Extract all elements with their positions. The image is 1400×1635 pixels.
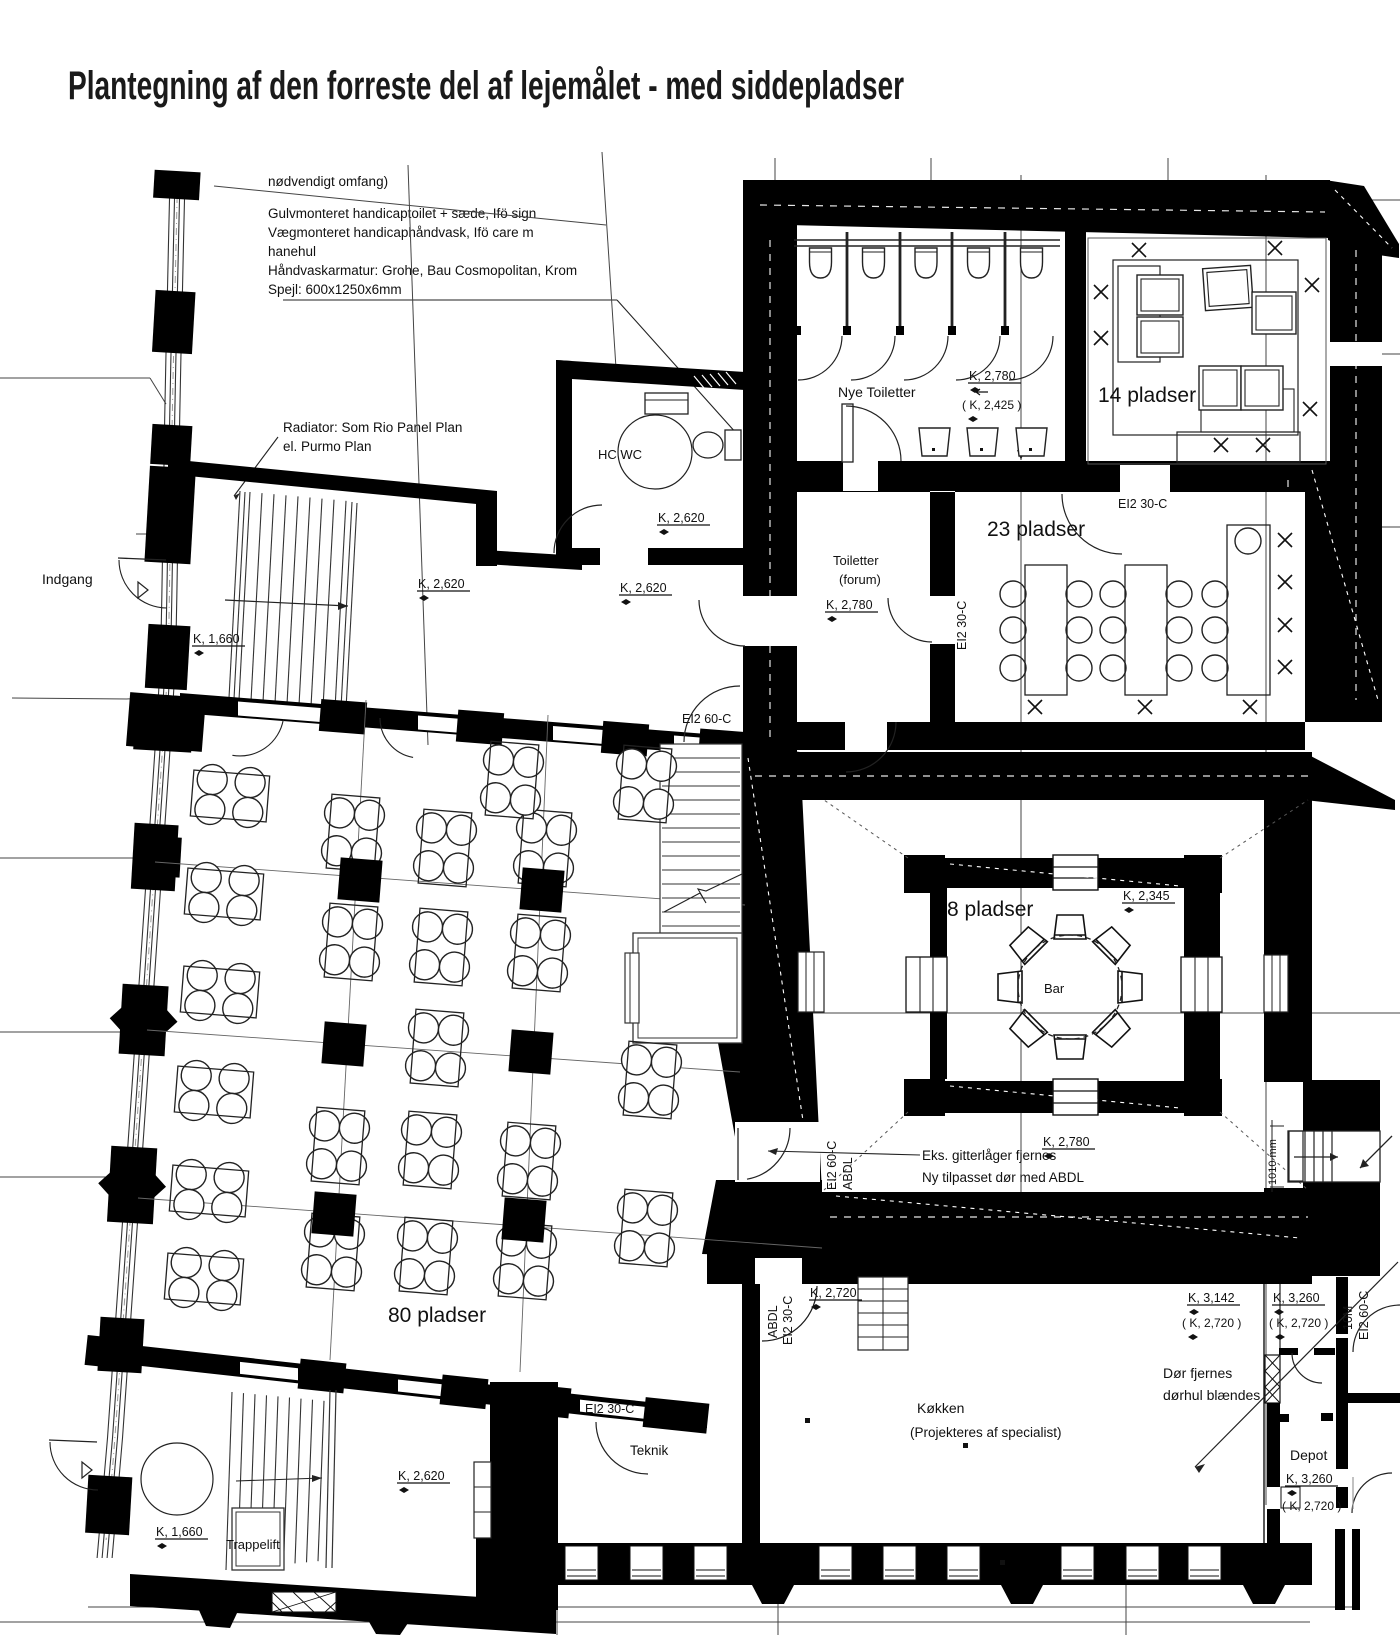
svg-text:K, 2,345: K, 2,345 bbox=[1123, 889, 1170, 903]
svg-text:EI2 60-C: EI2 60-C bbox=[682, 712, 731, 726]
svg-text:K, 3,260: K, 3,260 bbox=[1286, 1472, 1333, 1486]
svg-text:Gulvmonteret handicaptoilet +: Gulvmonteret handicaptoilet + sæde, Ifö … bbox=[268, 206, 536, 221]
svg-text:Håndvaskarmatur: Grohe, Bau Co: Håndvaskarmatur: Grohe, Bau Cosmopolitan… bbox=[268, 263, 577, 278]
svg-text:EI2 60-C: EI2 60-C bbox=[825, 1141, 839, 1190]
svg-text:Indgang: Indgang bbox=[42, 571, 93, 587]
svg-text:EI2 30-C: EI2 30-C bbox=[585, 1402, 634, 1416]
svg-text:EI2 60-C: EI2 60-C bbox=[1357, 1291, 1371, 1340]
svg-text:( K, 2,425 ): ( K, 2,425 ) bbox=[962, 398, 1021, 412]
svg-text:K, 2,720: K, 2,720 bbox=[810, 1286, 857, 1300]
svg-text:ABDL: ABDL bbox=[841, 1157, 855, 1190]
svg-text:10M: 10M bbox=[1341, 1306, 1355, 1330]
svg-text:(forum): (forum) bbox=[839, 572, 881, 587]
svg-text:( K, 2,720 ): ( K, 2,720 ) bbox=[1269, 1316, 1328, 1330]
svg-text:K, 3,142: K, 3,142 bbox=[1188, 1291, 1235, 1305]
svg-text:el. Purmo Plan: el. Purmo Plan bbox=[283, 439, 372, 454]
svg-text:K, 2,780: K, 2,780 bbox=[1043, 1135, 1090, 1149]
svg-text:Eks. gitterlåger fjernes: Eks. gitterlåger fjernes bbox=[922, 1148, 1057, 1163]
svg-text:1010 mm: 1010 mm bbox=[1267, 1139, 1279, 1185]
svg-text:K, 1,660: K, 1,660 bbox=[193, 632, 240, 646]
svg-text:Vægmonteret handicaphåndvask,: Vægmonteret handicaphåndvask, Ifö care m bbox=[268, 225, 534, 240]
svg-text:(Projekteres af specialist): (Projekteres af specialist) bbox=[910, 1425, 1062, 1440]
svg-text:Depot: Depot bbox=[1290, 1447, 1327, 1463]
svg-text:80 pladser: 80 pladser bbox=[388, 1304, 486, 1327]
svg-text:14 pladser: 14 pladser bbox=[1098, 384, 1196, 407]
svg-text:K, 2,780: K, 2,780 bbox=[969, 369, 1016, 383]
svg-text:( K, 2,720 ): ( K, 2,720 ) bbox=[1182, 1316, 1241, 1330]
svg-text:EI2 30-C: EI2 30-C bbox=[781, 1296, 795, 1345]
svg-text:K, 2,620: K, 2,620 bbox=[620, 581, 667, 595]
svg-text:dørhul blændes: dørhul blændes bbox=[1163, 1387, 1260, 1403]
svg-text:Dør fjernes: Dør fjernes bbox=[1163, 1365, 1232, 1381]
svg-text:K, 2,620: K, 2,620 bbox=[418, 577, 465, 591]
svg-text:Spejl: 600x1250x6mm: Spejl: 600x1250x6mm bbox=[268, 282, 402, 297]
svg-text:Radiator: Som Rio Panel Plan: Radiator: Som Rio Panel Plan bbox=[283, 420, 462, 435]
svg-text:Køkken: Køkken bbox=[917, 1400, 964, 1416]
svg-text:K, 1,660: K, 1,660 bbox=[156, 1525, 203, 1539]
svg-text:nødvendigt omfang): nødvendigt omfang) bbox=[268, 174, 388, 189]
svg-text:( K, 2,720 ): ( K, 2,720 ) bbox=[1282, 1499, 1341, 1513]
svg-text:Ny tilpasset dør med ABDL: Ny tilpasset dør med ABDL bbox=[922, 1170, 1085, 1185]
svg-text:8 pladser: 8 pladser bbox=[947, 898, 1033, 921]
svg-text:hanehul: hanehul bbox=[268, 244, 316, 259]
svg-text:Nye Toiletter: Nye Toiletter bbox=[838, 384, 916, 400]
svg-text:EI2 30-C: EI2 30-C bbox=[955, 601, 969, 650]
svg-text:Teknik: Teknik bbox=[630, 1443, 669, 1458]
svg-text:K, 2,780: K, 2,780 bbox=[826, 598, 873, 612]
svg-text:HC WC: HC WC bbox=[598, 447, 642, 462]
svg-text:Plantegning af den forreste de: Plantegning af den forreste del af lejem… bbox=[68, 64, 904, 108]
svg-text:EI2 30-C: EI2 30-C bbox=[1118, 497, 1167, 511]
svg-text:K, 3,260: K, 3,260 bbox=[1273, 1291, 1320, 1305]
svg-text:Bar: Bar bbox=[1044, 981, 1065, 996]
svg-text:Trappelift: Trappelift bbox=[226, 1537, 280, 1552]
svg-text:23 pladser: 23 pladser bbox=[987, 518, 1085, 541]
svg-text:Toiletter: Toiletter bbox=[833, 553, 879, 568]
svg-text:K, 2,620: K, 2,620 bbox=[398, 1469, 445, 1483]
svg-text:K, 2,620: K, 2,620 bbox=[658, 511, 705, 525]
svg-text:ABDL: ABDL bbox=[766, 1305, 780, 1338]
